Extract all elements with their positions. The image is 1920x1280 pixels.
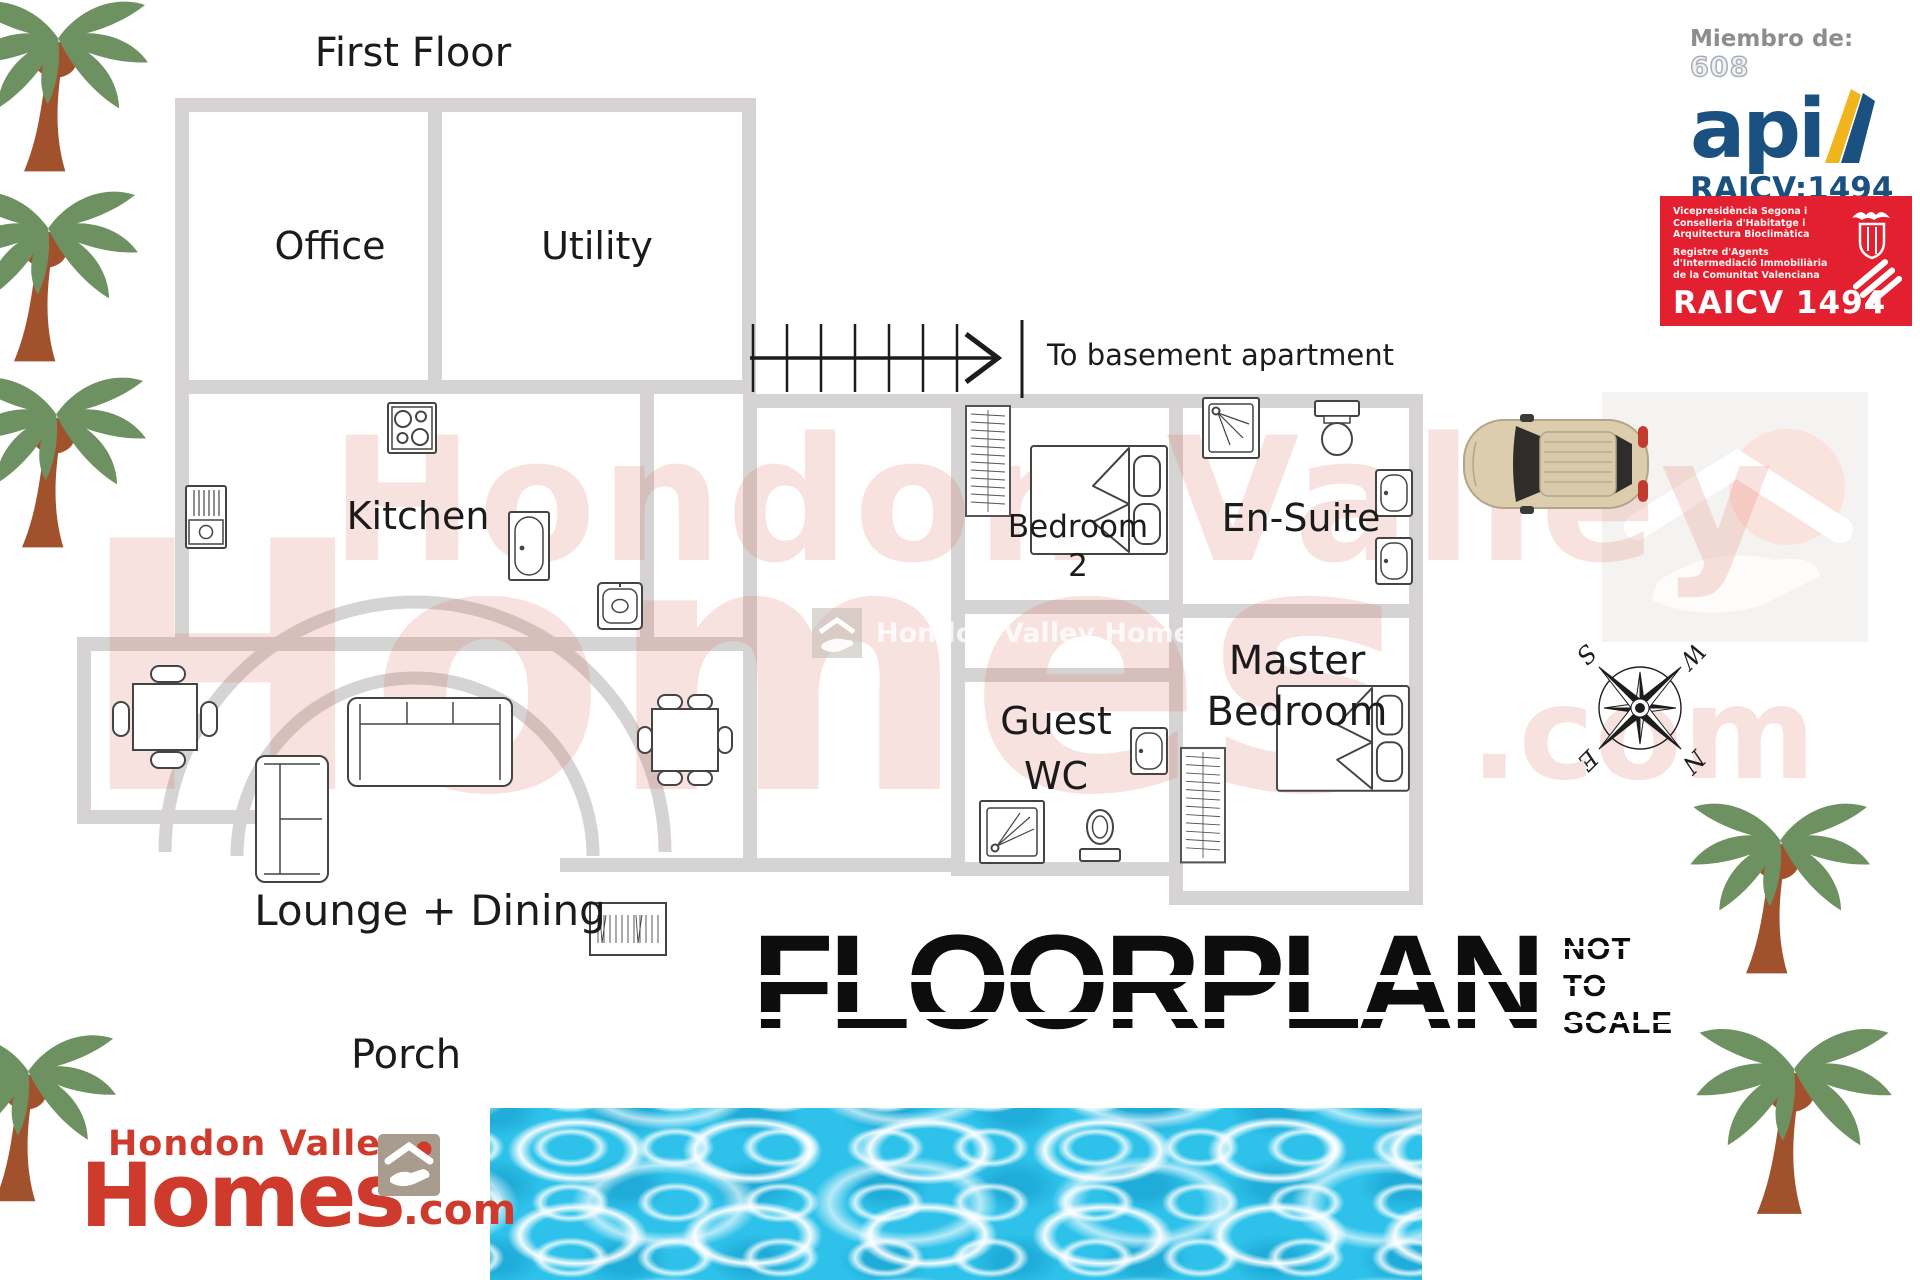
floorplan-page: Hondon Valley Homes .com Hondon Valley H…	[0, 0, 1920, 1280]
agency-logo-name: Homes	[80, 1152, 403, 1240]
api-member-number: 608	[1690, 52, 1749, 83]
floorplan-stamp-title: FLOORPLAN	[752, 928, 1541, 1038]
room-label-utility: Utility	[541, 224, 653, 268]
stairs-note: To basement apartment	[1047, 338, 1394, 372]
api-logo-text: api	[1690, 95, 1823, 165]
floorplan-stamp: FLOORPLAN	[752, 928, 1541, 1038]
room-label-kitchen: Kitchen	[347, 494, 490, 538]
pool-image	[490, 1108, 1422, 1280]
house-in-hand-mini-icon	[812, 608, 862, 658]
watermark-center-text: Hondon Valley Homes	[876, 618, 1208, 649]
room-label-lounge-dining: Lounge + Dining	[254, 886, 606, 935]
raicv-badge: Vicepresidència Segona i Conselleria d'H…	[1660, 196, 1912, 326]
room-label-master-bedroom: Master Bedroom	[1207, 636, 1388, 738]
room-label-office: Office	[275, 224, 386, 268]
valencia-emblem-icon	[1848, 206, 1904, 318]
watermark-tld: .com	[1470, 660, 1816, 809]
floor-title: First Floor	[315, 30, 511, 76]
room-label-porch: Porch	[351, 1032, 461, 1078]
agency-logo: Hondon Valley Homes .com	[80, 1124, 516, 1240]
api-membership-logo: Miembro de: 608 api RAICV:1494	[1690, 26, 1900, 207]
stairs-icon	[750, 320, 1022, 398]
api-member-label: Miembro de:	[1690, 26, 1853, 52]
room-label-guest-wc: Guest WC	[1000, 694, 1112, 804]
room-label-bedroom2: Bedroom 2	[1008, 508, 1148, 586]
room-label-ensuite: En-Suite	[1222, 496, 1381, 540]
api-door-icon	[1823, 85, 1875, 165]
watermark-center: Hondon Valley Homes	[812, 608, 1208, 658]
house-in-hand-icon	[378, 1134, 440, 1196]
not-to-scale-note: NOT TO SCALE	[1563, 930, 1673, 1041]
